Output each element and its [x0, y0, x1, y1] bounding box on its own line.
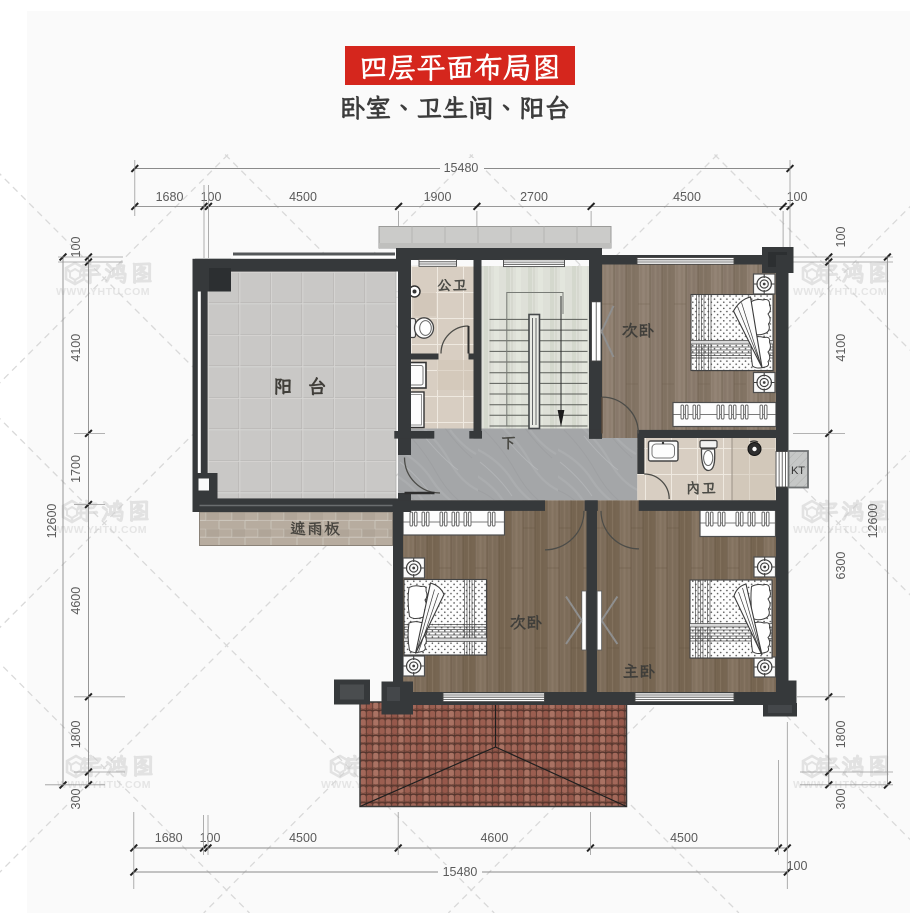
svg-text:15480: 15480 [443, 865, 478, 879]
svg-text:KT: KT [791, 465, 805, 477]
svg-text:WWW.YHTU.COM: WWW.YHTU.COM [53, 524, 147, 536]
svg-text:12600: 12600 [866, 504, 880, 539]
svg-text:15480: 15480 [444, 161, 479, 175]
svg-text:4100: 4100 [69, 334, 83, 362]
svg-text:1900: 1900 [424, 190, 452, 204]
svg-text:100: 100 [69, 237, 83, 258]
svg-text:4600: 4600 [69, 587, 83, 615]
svg-text:1800: 1800 [69, 720, 83, 748]
svg-text:4600: 4600 [480, 831, 508, 845]
svg-text:100: 100 [787, 859, 808, 873]
svg-text:1680: 1680 [156, 190, 184, 204]
svg-text:4100: 4100 [834, 334, 848, 362]
svg-text:WWW.YHTU.COM: WWW.YHTU.COM [793, 286, 887, 298]
svg-text:4500: 4500 [289, 831, 317, 845]
svg-text:300: 300 [69, 789, 83, 810]
svg-text:4500: 4500 [289, 190, 317, 204]
svg-text:WWW.YHTU.COM: WWW.YHTU.COM [56, 286, 150, 298]
svg-text:100: 100 [834, 227, 848, 248]
svg-text:12600: 12600 [45, 504, 59, 539]
svg-text:1700: 1700 [69, 455, 83, 483]
svg-text:1800: 1800 [834, 720, 848, 748]
svg-text:100: 100 [200, 831, 221, 845]
svg-text:2700: 2700 [520, 190, 548, 204]
svg-text:1680: 1680 [155, 831, 183, 845]
svg-text:300: 300 [834, 789, 848, 810]
svg-text:6300: 6300 [834, 552, 848, 580]
svg-text:4500: 4500 [670, 831, 698, 845]
svg-text:4500: 4500 [673, 190, 701, 204]
